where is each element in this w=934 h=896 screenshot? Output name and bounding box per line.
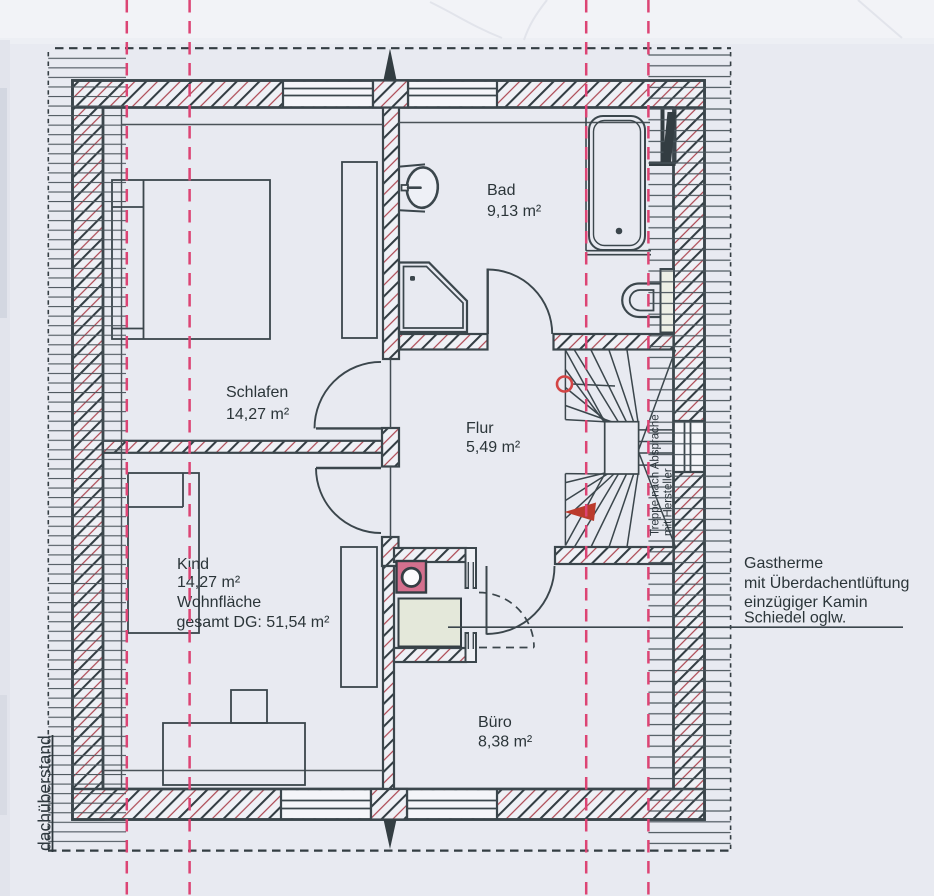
- svg-text:Kind: Kind: [177, 556, 209, 573]
- svg-text:Schiedel oglw.: Schiedel oglw.: [744, 610, 846, 627]
- svg-text:mit Hersteller: mit Hersteller: [663, 468, 675, 536]
- svg-text:Büro: Büro: [478, 714, 512, 731]
- svg-text:einzügiger Kamin: einzügiger Kamin: [744, 594, 868, 611]
- svg-text:dachüberstand: dachüberstand: [35, 735, 55, 851]
- svg-text:Bad: Bad: [487, 182, 515, 199]
- svg-text:8,38 m²: 8,38 m²: [478, 734, 533, 751]
- svg-text:Schlafen: Schlafen: [226, 384, 288, 401]
- svg-text:14,27 m²: 14,27 m²: [177, 574, 241, 591]
- svg-text:9,13 m²: 9,13 m²: [487, 203, 542, 220]
- svg-text:Flur: Flur: [466, 420, 494, 437]
- svg-text:14,27 m²: 14,27 m²: [226, 406, 290, 423]
- svg-text:5,49 m²: 5,49 m²: [466, 439, 521, 456]
- svg-text:gesamt DG: 51,54 m²: gesamt DG: 51,54 m²: [177, 614, 331, 631]
- svg-text:Gastherme: Gastherme: [744, 555, 823, 572]
- svg-text:mit Überdachentlüftung: mit Überdachentlüftung: [744, 574, 909, 592]
- svg-text:Treppe nach Absprache: Treppe nach Absprache: [650, 414, 662, 536]
